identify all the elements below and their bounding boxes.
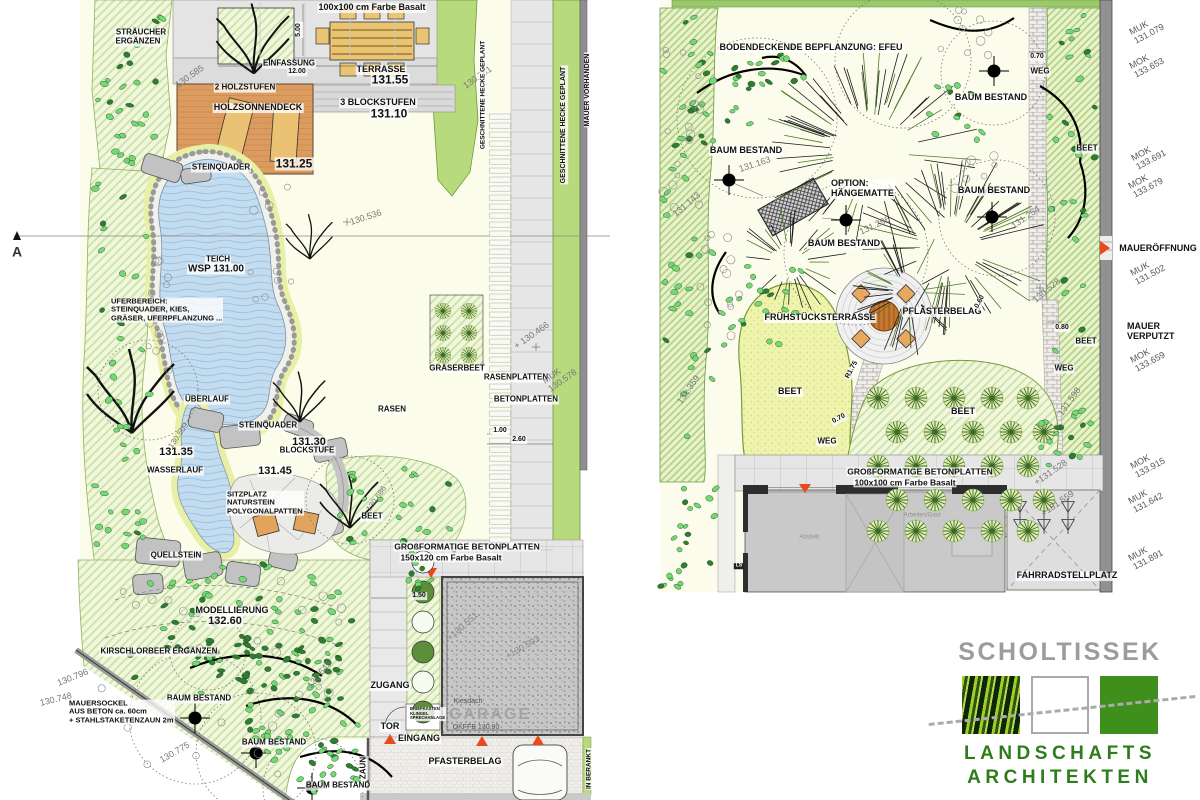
logo-landschafts-text: LANDSCHAFTS	[956, 743, 1164, 765]
logo-company-name: SCHOLTISSEK	[956, 638, 1164, 667]
plan-sheet: 100x100 cm Farbe Basalt5.00STRÄUCHERERGÄ…	[0, 0, 1200, 800]
logo-grass-photo-square	[962, 676, 1020, 734]
logo-architekten-text: ARCHITEKTEN	[956, 767, 1164, 789]
logo-squares	[962, 676, 1158, 736]
logo-white-square	[1031, 676, 1089, 734]
company-logo: SCHOLTISSEK LANDSCHAFTS ARCHITEKTEN	[956, 638, 1164, 789]
left-plan-drawing	[13, 0, 610, 800]
